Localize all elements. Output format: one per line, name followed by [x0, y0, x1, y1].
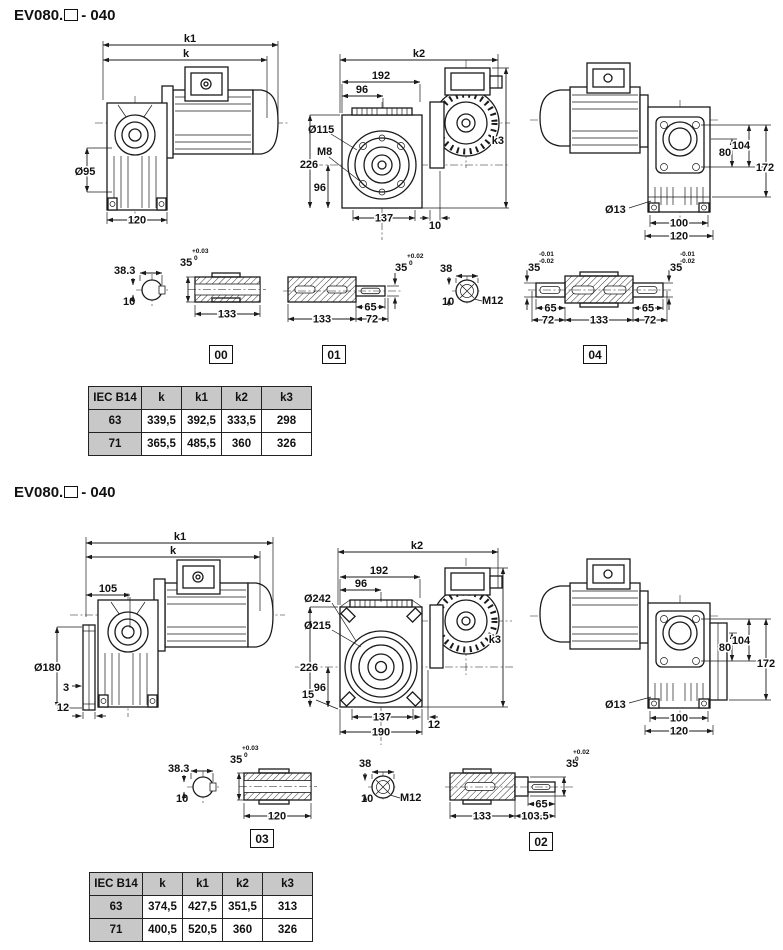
table-row: 71 400,5 520,5 360 326: [90, 919, 313, 942]
page-title-2: EV080.- 040: [14, 484, 115, 501]
dim-137: 137: [375, 213, 393, 225]
dim-m8: M8: [317, 146, 332, 158]
dim-104: 104: [732, 635, 751, 647]
dim-k2: k2: [411, 540, 423, 552]
dim-96h: 96: [355, 578, 367, 590]
dim-k1: k1: [174, 531, 186, 543]
s1-shaft-00-drawing: 38.3 10 35 +0.03 0 133: [100, 243, 268, 328]
cell: 485,5: [182, 433, 222, 456]
dim-35-tol-dn: 0: [409, 260, 413, 267]
dim-35-tol-up: +0.02: [407, 253, 424, 260]
dim-38-3: 38.3: [168, 763, 189, 775]
catalog-page: EV080.- 040 k1 k Ø95 120: [0, 0, 783, 950]
col-header: k2: [222, 387, 262, 410]
dim-38: 38: [440, 263, 452, 275]
dim-172: 172: [757, 658, 775, 670]
dim-dia115: Ø115: [308, 124, 334, 136]
row-label: 63: [90, 896, 143, 919]
dim-35R-tol2: -0.02: [680, 258, 695, 265]
cell: 339,5: [142, 410, 182, 433]
s2-shaft-03-drawing: 38.3 10 35 +0.03 0 120: [155, 745, 323, 825]
cell: 520,5: [183, 919, 223, 942]
dim-172: 172: [756, 162, 774, 174]
dim-dia180: Ø180: [34, 662, 61, 674]
dim-k: k: [170, 545, 177, 557]
dim-35-tol-dn: 0: [194, 255, 198, 262]
dim-35-tol-up: +0.02: [573, 749, 590, 756]
page-title-1: EV080.- 040: [14, 7, 115, 24]
dim-dia215: Ø215: [304, 620, 331, 632]
dim-35-tol-dn: 0: [244, 752, 248, 759]
dim-120: 120: [670, 231, 688, 243]
dim-10: 10: [361, 793, 373, 805]
s1-side-view-drawing: k1 k Ø95 120: [70, 38, 292, 238]
cell: 298: [262, 410, 312, 433]
table-row: 63 339,5 392,5 333,5 298: [89, 410, 312, 433]
cell: 392,5: [182, 410, 222, 433]
dim-35R-tol1: -0.01: [680, 251, 695, 258]
cell: 374,5: [143, 896, 183, 919]
dim-12: 12: [428, 719, 440, 731]
dim-k2: k2: [413, 48, 425, 60]
row-label: 63: [89, 410, 142, 433]
dim-72b: 72: [644, 315, 656, 327]
s2-side-view-drawing: k1 k 105 Ø180 3 12: [30, 525, 292, 730]
dim-10: 10: [176, 793, 188, 805]
dim-10: 10: [442, 296, 454, 308]
dim-105: 105: [99, 583, 117, 595]
dim-k: k: [183, 48, 190, 60]
dim-65a: 65: [544, 303, 556, 315]
table-row: 63 374,5 427,5 351,5 313: [90, 896, 313, 919]
s1-front-view-drawing: k2 k3 192 96 Ø115 M8 226 96 137 10: [295, 40, 517, 245]
dim-k1: k1: [184, 33, 196, 45]
cell: 365,5: [142, 433, 182, 456]
dim-72a: 72: [542, 315, 554, 327]
dim-k3: k3: [492, 135, 504, 147]
variant-tag-04: 04: [583, 345, 607, 364]
row-label: 71: [89, 433, 142, 456]
dim-133: 133: [590, 315, 608, 327]
s2-key-end-view: 38 10 M12: [350, 748, 430, 810]
col-header: IEC B14: [89, 387, 142, 410]
dim-38: 38: [359, 758, 371, 770]
dim-226: 226: [300, 159, 318, 171]
cell: 360: [223, 919, 263, 942]
dim-190: 190: [372, 727, 390, 739]
cell: 326: [263, 919, 313, 942]
col-header: k: [143, 873, 183, 896]
variant-tag-02: 02: [529, 832, 553, 851]
s2-end-view-drawing: 80 104 172 Ø13 100 120: [525, 545, 783, 745]
dim-103-5: 103.5: [521, 811, 549, 823]
dim-133: 133: [218, 309, 236, 321]
dim-35: 35: [395, 262, 407, 274]
dim-100: 100: [670, 218, 688, 230]
dim-35: 35: [180, 257, 192, 269]
dim-65b: 65: [642, 303, 654, 315]
dim-192: 192: [372, 70, 390, 82]
dim-96v: 96: [314, 182, 326, 194]
col-header: k3: [263, 873, 313, 896]
dim-35-tol-up: +0.03: [192, 248, 209, 255]
dim-10: 10: [429, 220, 441, 232]
dim-192: 192: [370, 565, 388, 577]
variant-tag-03: 03: [250, 829, 274, 848]
dim-137: 137: [373, 712, 391, 724]
dim-72: 72: [366, 314, 378, 326]
dim-226: 226: [300, 662, 318, 674]
cell: 333,5: [222, 410, 262, 433]
dim-38-3: 38.3: [114, 265, 135, 277]
dim-133: 133: [473, 811, 491, 823]
cell: 351,5: [223, 896, 263, 919]
dim-dia95: Ø95: [75, 166, 96, 178]
dim-k3: k3: [489, 634, 501, 646]
cell: 313: [263, 896, 313, 919]
dim-15: 15: [302, 689, 314, 701]
dim-m12: M12: [400, 792, 421, 804]
dimension-table-2: IEC B14 k k1 k2 k3 63 374,5 427,5 351,5 …: [89, 872, 313, 942]
dim-120: 120: [268, 811, 286, 823]
dimension-table-1: IEC B14 k k1 k2 k3 63 339,5 392,5 333,5 …: [88, 386, 312, 456]
dim-35-tol-dn: 0: [575, 756, 579, 763]
cell: 400,5: [143, 919, 183, 942]
cell: 427,5: [183, 896, 223, 919]
col-header: IEC B14: [90, 873, 143, 896]
dim-80: 80: [719, 147, 731, 159]
dim-96v: 96: [314, 682, 326, 694]
title-prefix: EV080.: [14, 484, 63, 501]
title-suffix: - 040: [81, 484, 115, 501]
s1-end-view-drawing: 80 104 172 Ø13 100 120: [525, 55, 783, 247]
dim-35L-tol2: -0.02: [539, 258, 554, 265]
dim-dia13: Ø13: [605, 204, 626, 216]
dim-120: 120: [128, 215, 146, 227]
dim-dia13: Ø13: [605, 699, 626, 711]
dim-35L-tol1: -0.01: [539, 251, 554, 258]
dim-3: 3: [63, 682, 69, 694]
s2-front-view-drawing: k2 k3 192 96 Ø242 Ø215 226 96 15 137 12 …: [280, 540, 520, 750]
row-label: 71: [90, 919, 143, 942]
title-suffix: - 040: [81, 7, 115, 24]
col-header: k1: [183, 873, 223, 896]
s1-shaft-04-drawing: 35 -0.01 -0.02 35 -0.01 -0.02 65 72 133 …: [490, 243, 697, 331]
col-header: k3: [262, 387, 312, 410]
col-header: k1: [182, 387, 222, 410]
dim-80: 80: [719, 642, 731, 654]
variant-tag-00: 00: [209, 345, 233, 364]
s1-shaft-01-drawing: 35 +0.02 0 65 72 133: [283, 243, 423, 328]
s2-shaft-02-drawing: 35 +0.02 0 65 133 103.5: [445, 745, 597, 827]
dim-35: 35: [230, 754, 242, 766]
cell: 360: [222, 433, 262, 456]
dim-104: 104: [732, 140, 751, 152]
dim-120: 120: [670, 726, 688, 738]
dim-65: 65: [535, 799, 547, 811]
dim-35-tol-up: +0.03: [242, 745, 259, 752]
variant-tag-01: 01: [322, 345, 346, 364]
title-placeholder-box: [64, 9, 78, 21]
dim-dia242: Ø242: [304, 593, 331, 605]
title-prefix: EV080.: [14, 7, 63, 24]
col-header: k2: [223, 873, 263, 896]
cell: 326: [262, 433, 312, 456]
dim-100: 100: [670, 713, 688, 725]
dim-65: 65: [364, 302, 376, 314]
col-header: k: [142, 387, 182, 410]
dim-12: 12: [57, 702, 69, 714]
dim-96h: 96: [356, 84, 368, 96]
table-row: 71 365,5 485,5 360 326: [89, 433, 312, 456]
title-placeholder-box: [64, 486, 78, 498]
dim-133: 133: [313, 314, 331, 326]
